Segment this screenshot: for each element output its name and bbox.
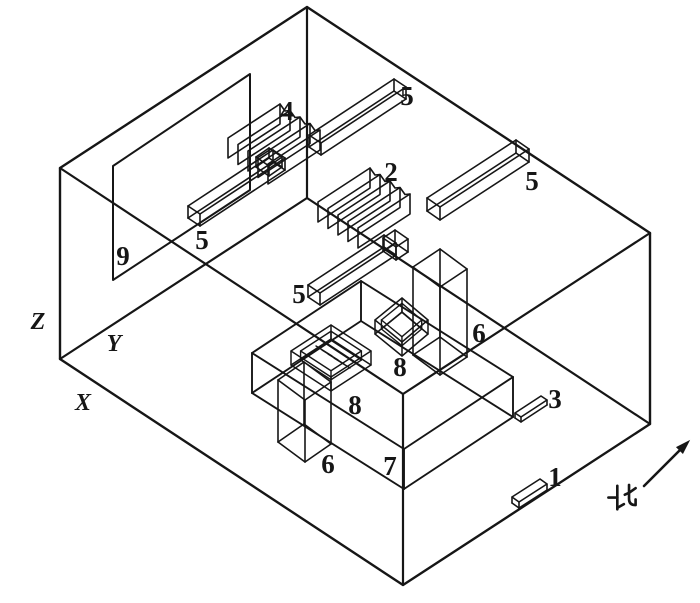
- box-edge: [361, 281, 513, 377]
- box-edge: [361, 321, 513, 417]
- axis-label-y: Y: [107, 331, 124, 357]
- fin-plate: [318, 168, 370, 222]
- box-edge: [396, 252, 408, 260]
- box-edge: [413, 249, 440, 267]
- box-edge: [427, 140, 516, 198]
- box-edge: [252, 281, 361, 353]
- part-label-2: 2: [384, 157, 398, 187]
- diagram-canvas: 45555296688731ZYX: [0, 0, 700, 603]
- part-label-5: 5: [525, 166, 539, 196]
- box-edge: [188, 150, 273, 206]
- box-8-left: [291, 325, 371, 391]
- box-edge: [427, 198, 440, 207]
- north-indicator: [608, 441, 689, 509]
- box-edge: [308, 297, 320, 305]
- axis-label-z: Z: [30, 309, 46, 335]
- box-edge: [395, 230, 408, 239]
- plate-3: [515, 396, 547, 422]
- room-outline: [60, 7, 650, 585]
- box-edge: [305, 382, 331, 400]
- box-edge: [308, 247, 384, 297]
- box-edge: [252, 353, 404, 449]
- box-edge: [413, 355, 440, 375]
- part-label-9: 9: [116, 241, 130, 271]
- fin-plate: [348, 188, 400, 242]
- box-8-right: [375, 298, 428, 356]
- box-edge: [440, 269, 467, 287]
- part-label-3: 3: [548, 384, 562, 414]
- lamp-5-mid-right: [427, 140, 529, 220]
- room-edge: [60, 198, 307, 359]
- fin-plate: [328, 175, 380, 229]
- box-edge: [440, 249, 467, 269]
- plate-front: [515, 405, 547, 422]
- box-edge: [308, 285, 320, 293]
- column-6-right: [413, 249, 467, 375]
- part-label-7: 7: [383, 451, 397, 481]
- part-label-5: 5: [292, 279, 306, 309]
- box-edge: [427, 211, 440, 220]
- part-label-6: 6: [321, 449, 335, 479]
- axonometric-room-diagram: 45555296688731ZYX: [0, 0, 700, 603]
- box-edge: [395, 243, 408, 252]
- part-label-6: 6: [472, 318, 486, 348]
- box-edge: [404, 417, 513, 489]
- box-edge: [308, 235, 384, 285]
- lamp-5-wall-left: [188, 150, 285, 226]
- box-edge: [278, 424, 304, 442]
- part-label-8: 8: [348, 390, 362, 420]
- plate-top: [515, 396, 547, 417]
- box-edge: [413, 267, 440, 287]
- box-edge: [304, 424, 331, 444]
- box-edge: [440, 149, 529, 207]
- part-label-1: 1: [548, 462, 562, 492]
- axis-labels: ZYX: [30, 309, 124, 416]
- part-label-8: 8: [393, 352, 407, 382]
- box-edge: [278, 442, 305, 462]
- north-label: [608, 485, 635, 509]
- box-edge: [309, 79, 394, 135]
- column-6-left: [278, 362, 331, 462]
- box-edge: [516, 153, 529, 162]
- box-edge: [320, 255, 396, 305]
- lamp-5-wall-right: [309, 79, 406, 155]
- part-label-5: 5: [195, 225, 209, 255]
- box-edge: [427, 153, 516, 211]
- fin-plate: [338, 181, 390, 235]
- part-label-4: 4: [280, 96, 294, 126]
- box-edge: [413, 337, 440, 355]
- north-arrow-shaft: [644, 450, 680, 486]
- box-edge: [200, 170, 285, 226]
- box-edge: [309, 91, 394, 147]
- box-edge: [321, 87, 406, 143]
- axis-label-x: X: [74, 390, 92, 416]
- plate-top: [512, 479, 547, 502]
- box-edge: [321, 99, 406, 155]
- room-wireframe: [60, 7, 650, 585]
- box-edge: [396, 239, 408, 247]
- box-edge: [440, 162, 529, 220]
- box-edge: [404, 377, 513, 449]
- part-label-5: 5: [400, 81, 414, 111]
- box-edge: [188, 206, 200, 214]
- box-edge: [200, 158, 285, 214]
